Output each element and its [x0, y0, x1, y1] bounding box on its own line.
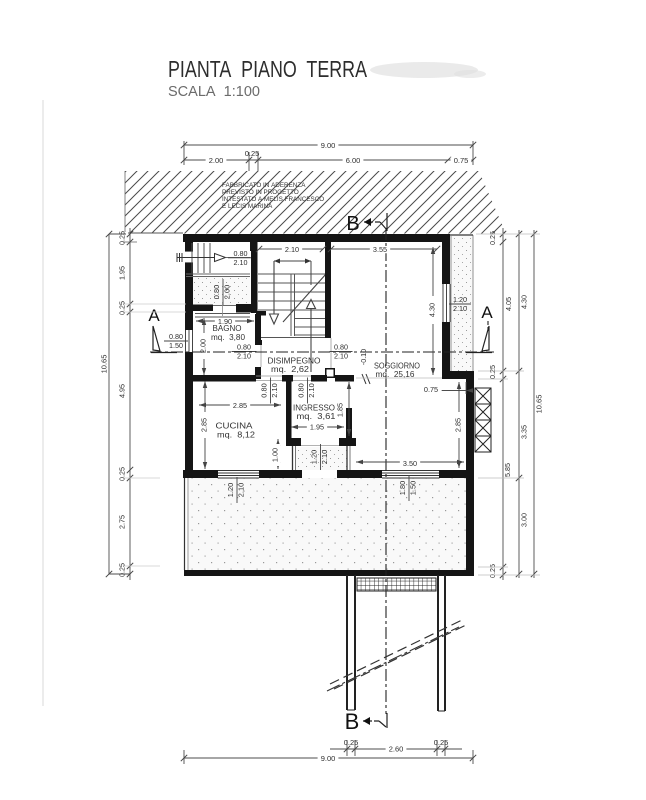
svg-text:0.25: 0.25 — [118, 301, 127, 315]
svg-text:2.10: 2.10 — [237, 352, 251, 361]
svg-text:1.95: 1.95 — [310, 423, 324, 432]
svg-text:3.00: 3.00 — [520, 513, 529, 527]
svg-text:0.80: 0.80 — [169, 332, 183, 341]
svg-text:0.80: 0.80 — [212, 285, 221, 299]
svg-text:mq. 3,61: mq. 3,61 — [297, 412, 337, 421]
svg-text:3.35: 3.35 — [520, 425, 529, 439]
svg-text:0.25: 0.25 — [245, 149, 260, 158]
svg-text:1.20: 1.20 — [310, 450, 319, 464]
svg-text:0.25: 0.25 — [118, 231, 127, 245]
svg-text:E LECIS MARINA: E LECIS MARINA — [222, 203, 273, 210]
svg-text:2.10: 2.10 — [320, 450, 329, 464]
svg-text:2.00: 2.00 — [199, 339, 208, 353]
svg-text:4.30: 4.30 — [520, 295, 529, 309]
svg-text:0.80: 0.80 — [297, 383, 306, 397]
svg-text:0.25: 0.25 — [118, 467, 127, 481]
svg-text:B: B — [346, 213, 359, 235]
svg-text:PIANTA PIANO TERRA: PIANTA PIANO TERRA — [168, 56, 367, 82]
svg-text:A: A — [148, 306, 160, 325]
svg-text:6.00: 6.00 — [346, 156, 361, 165]
svg-text:1.20: 1.20 — [453, 295, 467, 304]
svg-text:2.00: 2.00 — [223, 285, 232, 299]
svg-text:3.50: 3.50 — [403, 459, 417, 468]
svg-text:DISIMPEGNO: DISIMPEGNO — [268, 356, 321, 366]
svg-text:9.00: 9.00 — [321, 754, 336, 763]
svg-text:3.55: 3.55 — [373, 245, 387, 254]
svg-text:mq. 8,12: mq. 8,12 — [217, 431, 256, 440]
svg-text:SOGGIORNO: SOGGIORNO — [374, 361, 420, 371]
svg-text:1.95: 1.95 — [118, 266, 127, 280]
svg-text:2.75: 2.75 — [118, 515, 127, 529]
svg-text:2.85: 2.85 — [200, 418, 209, 432]
svg-text:2.10: 2.10 — [453, 304, 467, 313]
svg-text:-0.10: -0.10 — [359, 349, 368, 365]
svg-text:10.65: 10.65 — [100, 355, 109, 374]
svg-text:0.75: 0.75 — [454, 156, 469, 165]
svg-text:1.20: 1.20 — [226, 483, 235, 497]
svg-text:2.10: 2.10 — [307, 383, 316, 397]
svg-text:2.00: 2.00 — [209, 156, 224, 165]
svg-text:A: A — [481, 303, 493, 322]
svg-text:0.80: 0.80 — [334, 343, 348, 352]
svg-text:0.25: 0.25 — [488, 564, 497, 578]
svg-text:mq. 3,80: mq. 3,80 — [211, 333, 246, 342]
svg-text:2.85: 2.85 — [233, 401, 247, 410]
svg-text:1.50: 1.50 — [169, 341, 183, 350]
svg-text:9.00: 9.00 — [321, 141, 336, 150]
svg-text:2.10: 2.10 — [334, 352, 348, 361]
svg-text:0.75: 0.75 — [424, 385, 438, 394]
svg-text:1.00: 1.00 — [271, 448, 280, 462]
svg-text:0.25: 0.25 — [488, 365, 497, 379]
svg-text:4.30: 4.30 — [428, 303, 437, 317]
svg-text:2.85: 2.85 — [454, 418, 463, 432]
svg-text:0.80: 0.80 — [260, 383, 269, 397]
svg-text:0.25: 0.25 — [488, 231, 497, 245]
svg-text:2.10: 2.10 — [234, 258, 248, 267]
svg-text:2.10: 2.10 — [285, 245, 299, 254]
svg-text:0.80: 0.80 — [234, 249, 248, 258]
svg-text:1.90: 1.90 — [218, 317, 232, 326]
svg-text:B: B — [345, 709, 360, 734]
svg-text:1.50: 1.50 — [409, 481, 418, 495]
svg-text:mq. 2,62: mq. 2,62 — [271, 365, 310, 374]
svg-text:10.65: 10.65 — [535, 395, 544, 414]
svg-text:5.85: 5.85 — [503, 463, 512, 477]
svg-text:0.25: 0.25 — [344, 738, 359, 747]
svg-text:2.10: 2.10 — [237, 483, 246, 497]
svg-text:INGRESSO: INGRESSO — [293, 403, 335, 413]
svg-text:SCALA 1:100: SCALA 1:100 — [168, 84, 260, 100]
svg-text:1.80: 1.80 — [398, 481, 407, 495]
svg-text:CUCINA: CUCINA — [216, 421, 253, 431]
svg-text:0.25: 0.25 — [118, 563, 127, 577]
svg-text:1.85: 1.85 — [336, 403, 345, 417]
svg-text:PREVISTO IN PROGETTO: PREVISTO IN PROGETTO — [222, 189, 299, 196]
svg-text:4.05: 4.05 — [504, 297, 513, 311]
svg-text:INTESTATO A MELIS FRANCESCO: INTESTATO A MELIS FRANCESCO — [222, 196, 324, 203]
svg-text:2.10: 2.10 — [270, 383, 279, 397]
svg-text:0.80: 0.80 — [237, 343, 251, 352]
svg-text:0.25: 0.25 — [434, 738, 449, 747]
svg-text:4.95: 4.95 — [118, 384, 127, 398]
svg-text:FABBRICATO IN ADERENZA: FABBRICATO IN ADERENZA — [222, 182, 306, 189]
svg-text:2.60: 2.60 — [389, 745, 404, 754]
